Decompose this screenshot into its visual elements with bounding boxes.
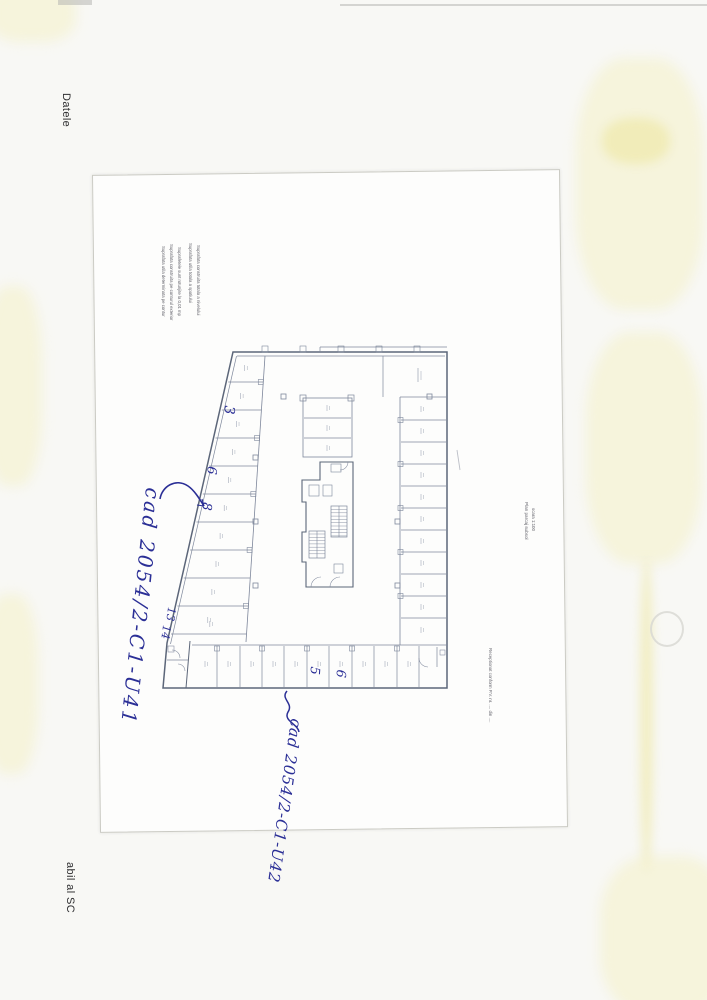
notes-line: Suprafata utila determinata pe contur [161,246,166,317]
plan-scale-line: scara 1:100 [531,508,536,531]
side-note: Receptionat conform P.V. nr. .... din ..… [488,648,493,722]
stall-number-13: 13 [163,606,178,621]
stall-number-8: 8 [198,502,214,512]
scanned-page: Suprafata utila determinata pe contur Su… [0,0,707,1000]
stall-number-5: 5 [306,666,322,675]
edge-text-top-left: Datele [60,93,72,127]
notes-line: Suprafata utila totala a spatiului [188,243,193,303]
stall-number-14: 14 [158,624,173,639]
notes-line: Suprafata construita pe conturul exterio… [169,244,174,320]
plan-title-line: Plan parcaj subsol [524,502,529,540]
stall-number-6b: 6 [332,669,348,678]
notes-line: Suprafetele sunt rotunjite la 0,01 mp [177,247,182,316]
floor-plan-drawing [0,0,707,1000]
stall-number-6: 6 [203,465,219,475]
edge-text-bottom-left: abil al SC [64,862,76,913]
notes-line: Suprafata construita totala a nivelului [196,245,201,315]
stall-number-3: 3 [221,405,237,415]
